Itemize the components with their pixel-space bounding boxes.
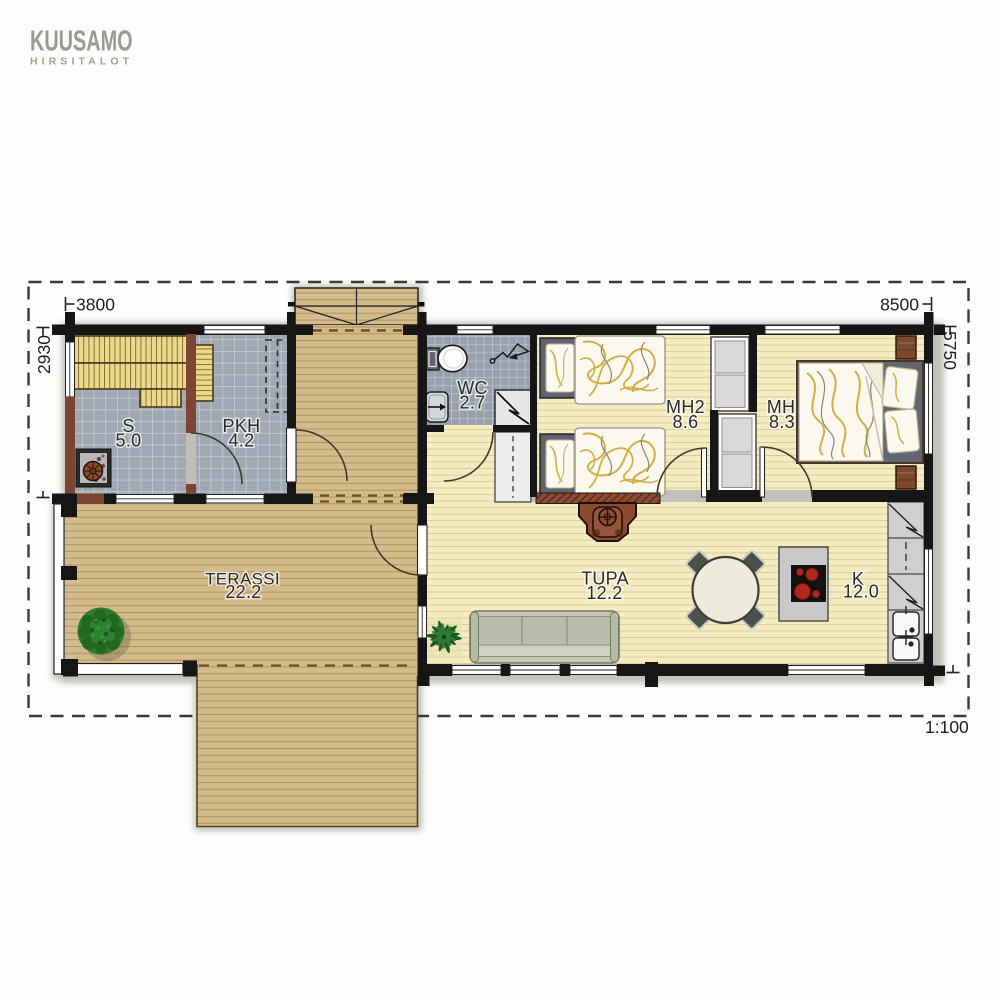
svg-text:12.2: 12.2 xyxy=(586,583,622,603)
svg-text:8500: 8500 xyxy=(880,295,919,315)
svg-text:5.0: 5.0 xyxy=(116,431,142,451)
svg-text:3800: 3800 xyxy=(76,295,115,315)
svg-text:8.3: 8.3 xyxy=(769,412,795,432)
svg-text:8.6: 8.6 xyxy=(673,412,699,432)
svg-text:2930: 2930 xyxy=(34,335,54,374)
svg-text:KUUSAMO: KUUSAMO xyxy=(30,26,133,58)
svg-text:12.0: 12.0 xyxy=(843,582,879,602)
svg-text:2.7: 2.7 xyxy=(460,393,486,413)
svg-text:5750: 5750 xyxy=(940,331,960,370)
svg-text:22.2: 22.2 xyxy=(225,582,261,602)
svg-text:4.2: 4.2 xyxy=(229,431,255,451)
svg-text:1:100: 1:100 xyxy=(925,717,969,737)
